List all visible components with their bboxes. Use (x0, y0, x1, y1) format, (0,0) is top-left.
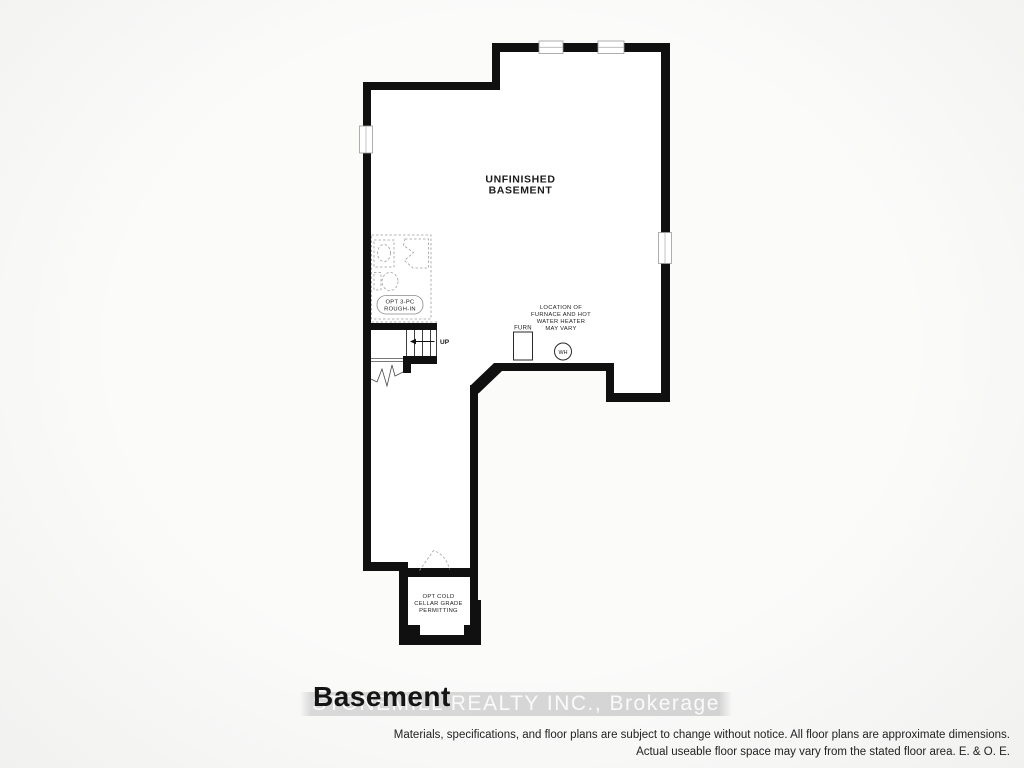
room-label: UNFINISHED BASEMENT (485, 174, 555, 197)
disclaimer-line2: Actual useable floor space may vary from… (394, 744, 1010, 761)
furnace-icon (514, 332, 533, 360)
svg-text:FURNACE AND HOT: FURNACE AND HOT (531, 312, 591, 318)
floorplan-drawing: UP OPT 3-PC ROUGH-IN FURN WH (0, 0, 1024, 768)
window-icon (598, 41, 624, 54)
svg-text:PERMITTING: PERMITTING (419, 608, 458, 614)
window-icon (539, 41, 563, 54)
window-icon (360, 126, 373, 153)
disclaimer: Materials, specifications, and floor pla… (394, 727, 1010, 761)
svg-text:LOCATION OF: LOCATION OF (540, 305, 582, 311)
floorplan-page: UP OPT 3-PC ROUGH-IN FURN WH (0, 0, 1024, 768)
svg-text:OPT COLD: OPT COLD (423, 594, 455, 600)
bath-label-line2: ROUGH-IN (384, 307, 416, 313)
svg-text:WATER HEATER: WATER HEATER (537, 319, 586, 325)
furnace-label: FURN (514, 326, 532, 332)
floor-title: Basement (313, 681, 451, 713)
disclaimer-line1: Materials, specifications, and floor pla… (394, 727, 1010, 744)
bath-label-line1: OPT 3-PC (385, 300, 414, 306)
window-icon (659, 233, 672, 264)
stairs-up-label: UP (440, 339, 450, 346)
water-heater-label: WH (559, 350, 568, 356)
svg-text:MAY VARY: MAY VARY (545, 326, 576, 332)
room-label-line2: BASEMENT (489, 185, 553, 197)
svg-text:CELLAR GRADE: CELLAR GRADE (414, 601, 462, 607)
